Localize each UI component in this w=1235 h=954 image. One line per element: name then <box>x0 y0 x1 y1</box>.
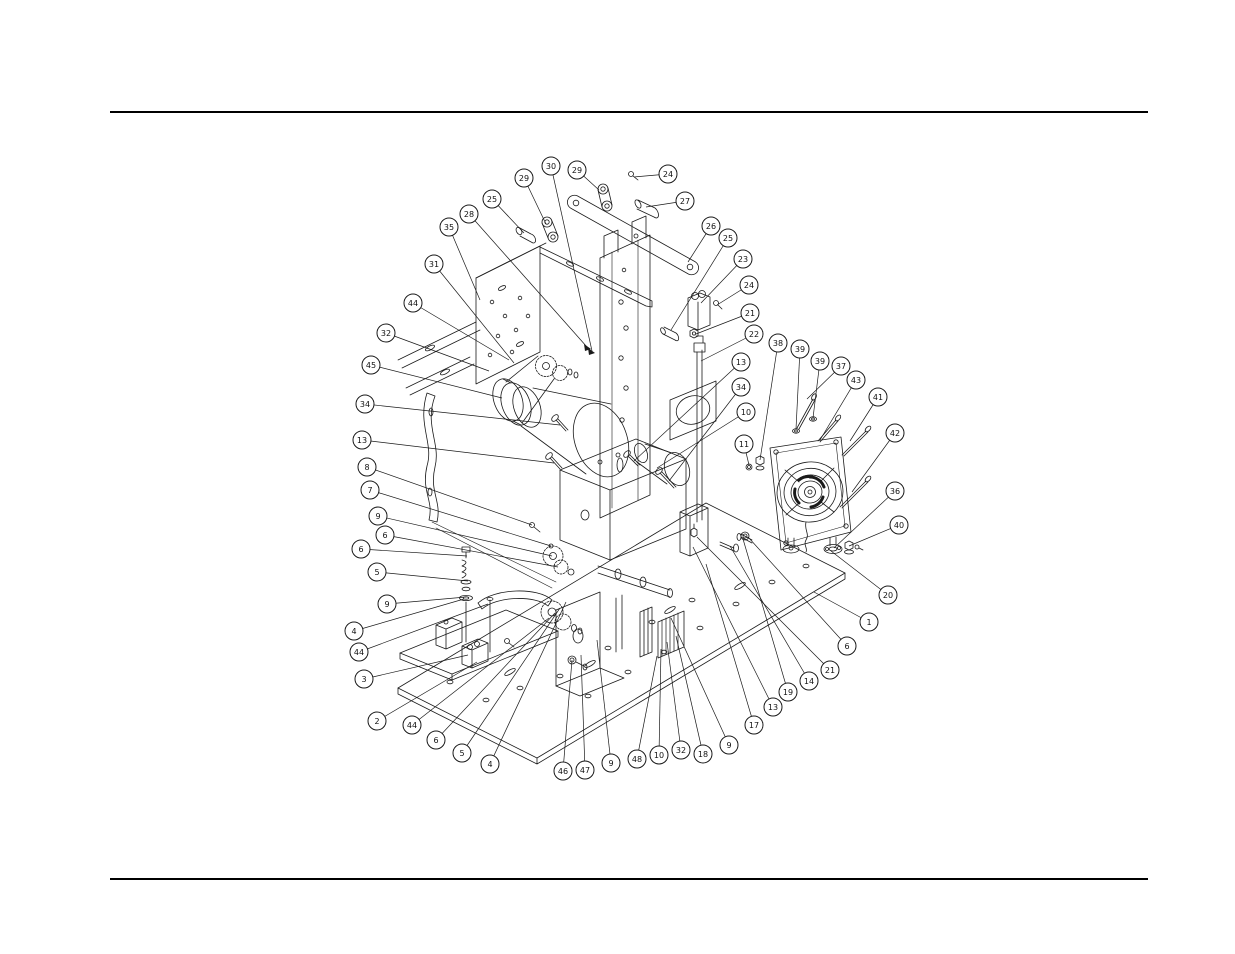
balloon-number: 9 <box>384 600 389 609</box>
part-balloon-5: 5 <box>453 608 560 762</box>
leader-line <box>730 546 809 681</box>
part-balloon-13: 13 <box>353 431 554 463</box>
balloon-number: 22 <box>749 330 759 339</box>
balloon-number: 4 <box>487 760 492 769</box>
part-balloon-3: 3 <box>355 655 468 688</box>
balloon-number: 21 <box>745 309 755 318</box>
balloon-number: 10 <box>741 408 751 417</box>
leader-line <box>462 608 560 753</box>
part-balloon-47: 47 <box>576 655 594 779</box>
frame-rails <box>398 322 556 588</box>
part-balloon-6: 6 <box>748 537 856 655</box>
leader-line <box>760 343 778 460</box>
part-balloon-45: 45 <box>362 356 502 398</box>
balloon-number: 41 <box>873 393 883 402</box>
balloon-number: 1 <box>866 618 871 627</box>
leader-line <box>706 564 754 725</box>
balloon-number: 37 <box>836 362 846 371</box>
part-balloon-32: 32 <box>377 324 489 371</box>
balloon-number: 29 <box>572 166 582 175</box>
balloon-number: 8 <box>364 463 369 472</box>
bearing-bracket <box>670 381 716 440</box>
part-balloon-43: 43 <box>820 371 865 440</box>
leader-line <box>820 380 856 440</box>
balloon-number: 5 <box>459 749 464 758</box>
leader-line <box>693 547 773 707</box>
leader-line <box>361 549 467 556</box>
balloon-number: 32 <box>676 746 686 755</box>
manual-page: 3029242925272826352523312444213222383939… <box>0 0 1235 954</box>
part-balloon-38: 38 <box>760 334 787 460</box>
leader-line <box>413 303 509 360</box>
balloon-number: 4 <box>351 627 356 636</box>
part-balloon-32: 32 <box>667 642 690 759</box>
part-balloon-21: 21 <box>697 537 839 679</box>
part-balloon-10: 10 <box>650 649 668 764</box>
leader-line <box>371 365 502 398</box>
leader-line <box>671 618 729 745</box>
motor <box>508 383 639 485</box>
balloon-number: 13 <box>736 358 746 367</box>
part-balloon-26: 26 <box>688 217 720 262</box>
balloon-number: 38 <box>773 339 783 348</box>
balloon-number: 35 <box>444 223 454 232</box>
leader-line <box>412 618 549 725</box>
balloon-number: 39 <box>795 345 805 354</box>
leader-line <box>659 649 661 755</box>
balloon-number: 32 <box>381 329 391 338</box>
part-balloon-46: 46 <box>554 660 572 780</box>
part-balloon-44: 44 <box>403 618 549 734</box>
part-balloon-25: 25 <box>671 229 737 330</box>
leader-line <box>436 613 555 740</box>
balloon-number: 6 <box>844 642 849 651</box>
part-balloon-9: 9 <box>378 595 466 613</box>
balloon-number: 13 <box>357 436 367 445</box>
part-balloon-9: 9 <box>597 640 620 772</box>
part-balloon-25: 25 <box>483 190 524 233</box>
part-balloon-11: 11 <box>735 435 753 465</box>
fan-feet <box>783 537 842 554</box>
leader-line <box>367 467 532 525</box>
balloon-number: 43 <box>851 376 861 385</box>
leader-line <box>449 227 480 300</box>
leader-line <box>796 349 800 429</box>
balloon-number: 18 <box>698 750 708 759</box>
leader-line <box>676 636 703 754</box>
misc-screws <box>544 413 752 543</box>
balloon-number: 24 <box>744 281 754 290</box>
part-balloon-40: 40 <box>849 516 908 546</box>
part-balloon-4: 4 <box>481 602 566 773</box>
exploded-assembly-drawing <box>398 172 872 765</box>
leader-line <box>667 642 681 750</box>
leader-line <box>434 264 514 363</box>
balloon-number: 30 <box>546 162 556 171</box>
leader-line <box>377 572 468 581</box>
balloon-number: 17 <box>749 721 759 730</box>
balloon-number: 13 <box>768 703 778 712</box>
part-balloon-13: 13 <box>693 547 782 716</box>
fan-assembly <box>770 437 851 554</box>
part-balloon-20: 20 <box>831 551 897 604</box>
balloon-number: 25 <box>487 195 497 204</box>
balloon-number: 9 <box>608 759 613 768</box>
gearbox-block <box>560 439 686 560</box>
balloon-number: 39 <box>815 357 825 366</box>
part-balloon-6: 6 <box>376 526 558 567</box>
leader-line <box>387 597 466 604</box>
balloon-number: 5 <box>374 568 379 577</box>
part-balloon-6: 6 <box>352 540 467 558</box>
part-balloon-28: 28 <box>460 205 587 347</box>
leader-line <box>597 640 611 763</box>
balloon-number: 11 <box>739 440 749 449</box>
balloon-number: 42 <box>890 429 900 438</box>
part-balloon-5: 5 <box>368 563 468 581</box>
leader-line <box>354 599 464 631</box>
part-balloon-24: 24 <box>634 165 677 183</box>
balloon-number: 9 <box>375 512 380 521</box>
balloon-number: 27 <box>680 197 690 206</box>
back-plate <box>476 243 546 384</box>
lower-cylinder <box>632 442 694 490</box>
balloon-number: 9 <box>726 741 731 750</box>
part-balloon-19: 19 <box>743 539 797 701</box>
balloon-number: 26 <box>706 222 716 231</box>
balloon-number: 47 <box>580 766 590 775</box>
balloon-number: 6 <box>382 531 387 540</box>
balloon-number: 45 <box>366 361 376 370</box>
balloon-number: 19 <box>783 688 793 697</box>
callout-balloons: 3029242925272826352523312444213222383939… <box>345 157 908 780</box>
part-balloon-36: 36 <box>834 482 904 548</box>
leader-line <box>743 539 788 692</box>
balloon-number: 48 <box>632 755 642 764</box>
part-balloon-23: 23 <box>701 250 752 303</box>
exploded-parts-diagram: 3029242925272826352523312444213222383939… <box>0 0 1235 954</box>
balloon-number: 10 <box>654 751 664 760</box>
part-balloon-22: 22 <box>701 325 763 361</box>
part-balloon-31: 31 <box>425 255 514 363</box>
balloon-number: 24 <box>663 170 673 179</box>
balloon-number: 6 <box>433 736 438 745</box>
balloon-number: 21 <box>825 666 835 675</box>
leader-line <box>362 440 554 463</box>
balloon-number: 25 <box>723 234 733 243</box>
balloon-number: 7 <box>367 486 372 495</box>
fan-guard <box>773 458 847 527</box>
balloon-number: 34 <box>736 383 746 392</box>
balloon-number: 3 <box>361 675 366 684</box>
leader-line <box>831 551 888 595</box>
balloon-number: 36 <box>890 487 900 496</box>
leader-line <box>581 655 585 770</box>
part-balloon-44: 44 <box>404 294 509 360</box>
part-balloon-1: 1 <box>814 592 878 631</box>
part-balloon-41: 41 <box>850 388 887 441</box>
balloon-number: 44 <box>407 721 417 730</box>
leader-line <box>469 214 587 347</box>
balloon-number: 44 <box>408 299 418 308</box>
part-balloon-39: 39 <box>811 352 829 418</box>
balloon-number: 34 <box>360 400 370 409</box>
balloon-number: 28 <box>464 210 474 219</box>
balloon-number: 20 <box>883 591 893 600</box>
balloon-number: 31 <box>429 260 439 269</box>
part-balloon-30: 30 <box>542 157 592 351</box>
part-balloon-35: 35 <box>440 218 480 300</box>
top-bar <box>540 247 652 307</box>
part-balloon-29: 29 <box>515 169 546 224</box>
part-balloon-13: 13 <box>634 353 750 461</box>
balloon-number: 23 <box>738 255 748 264</box>
balloon-number: 2 <box>374 717 379 726</box>
part-balloon-29: 29 <box>568 161 599 190</box>
balloon-number: 44 <box>354 648 364 657</box>
leader-line <box>637 656 657 759</box>
part-balloon-34: 34 <box>669 378 750 481</box>
balloon-number: 40 <box>894 521 904 530</box>
balloon-number: 14 <box>804 677 814 686</box>
leader-line <box>669 387 741 481</box>
base-plate <box>398 503 845 764</box>
part-balloon-44: 44 <box>350 604 488 661</box>
leader-line <box>563 660 572 771</box>
balloon-number: 46 <box>558 767 568 776</box>
part-balloon-24: 24 <box>717 276 758 305</box>
side-bracket <box>424 393 438 522</box>
leader-line <box>551 166 592 351</box>
balloon-number: 29 <box>519 174 529 183</box>
balloon-number: 6 <box>358 545 363 554</box>
